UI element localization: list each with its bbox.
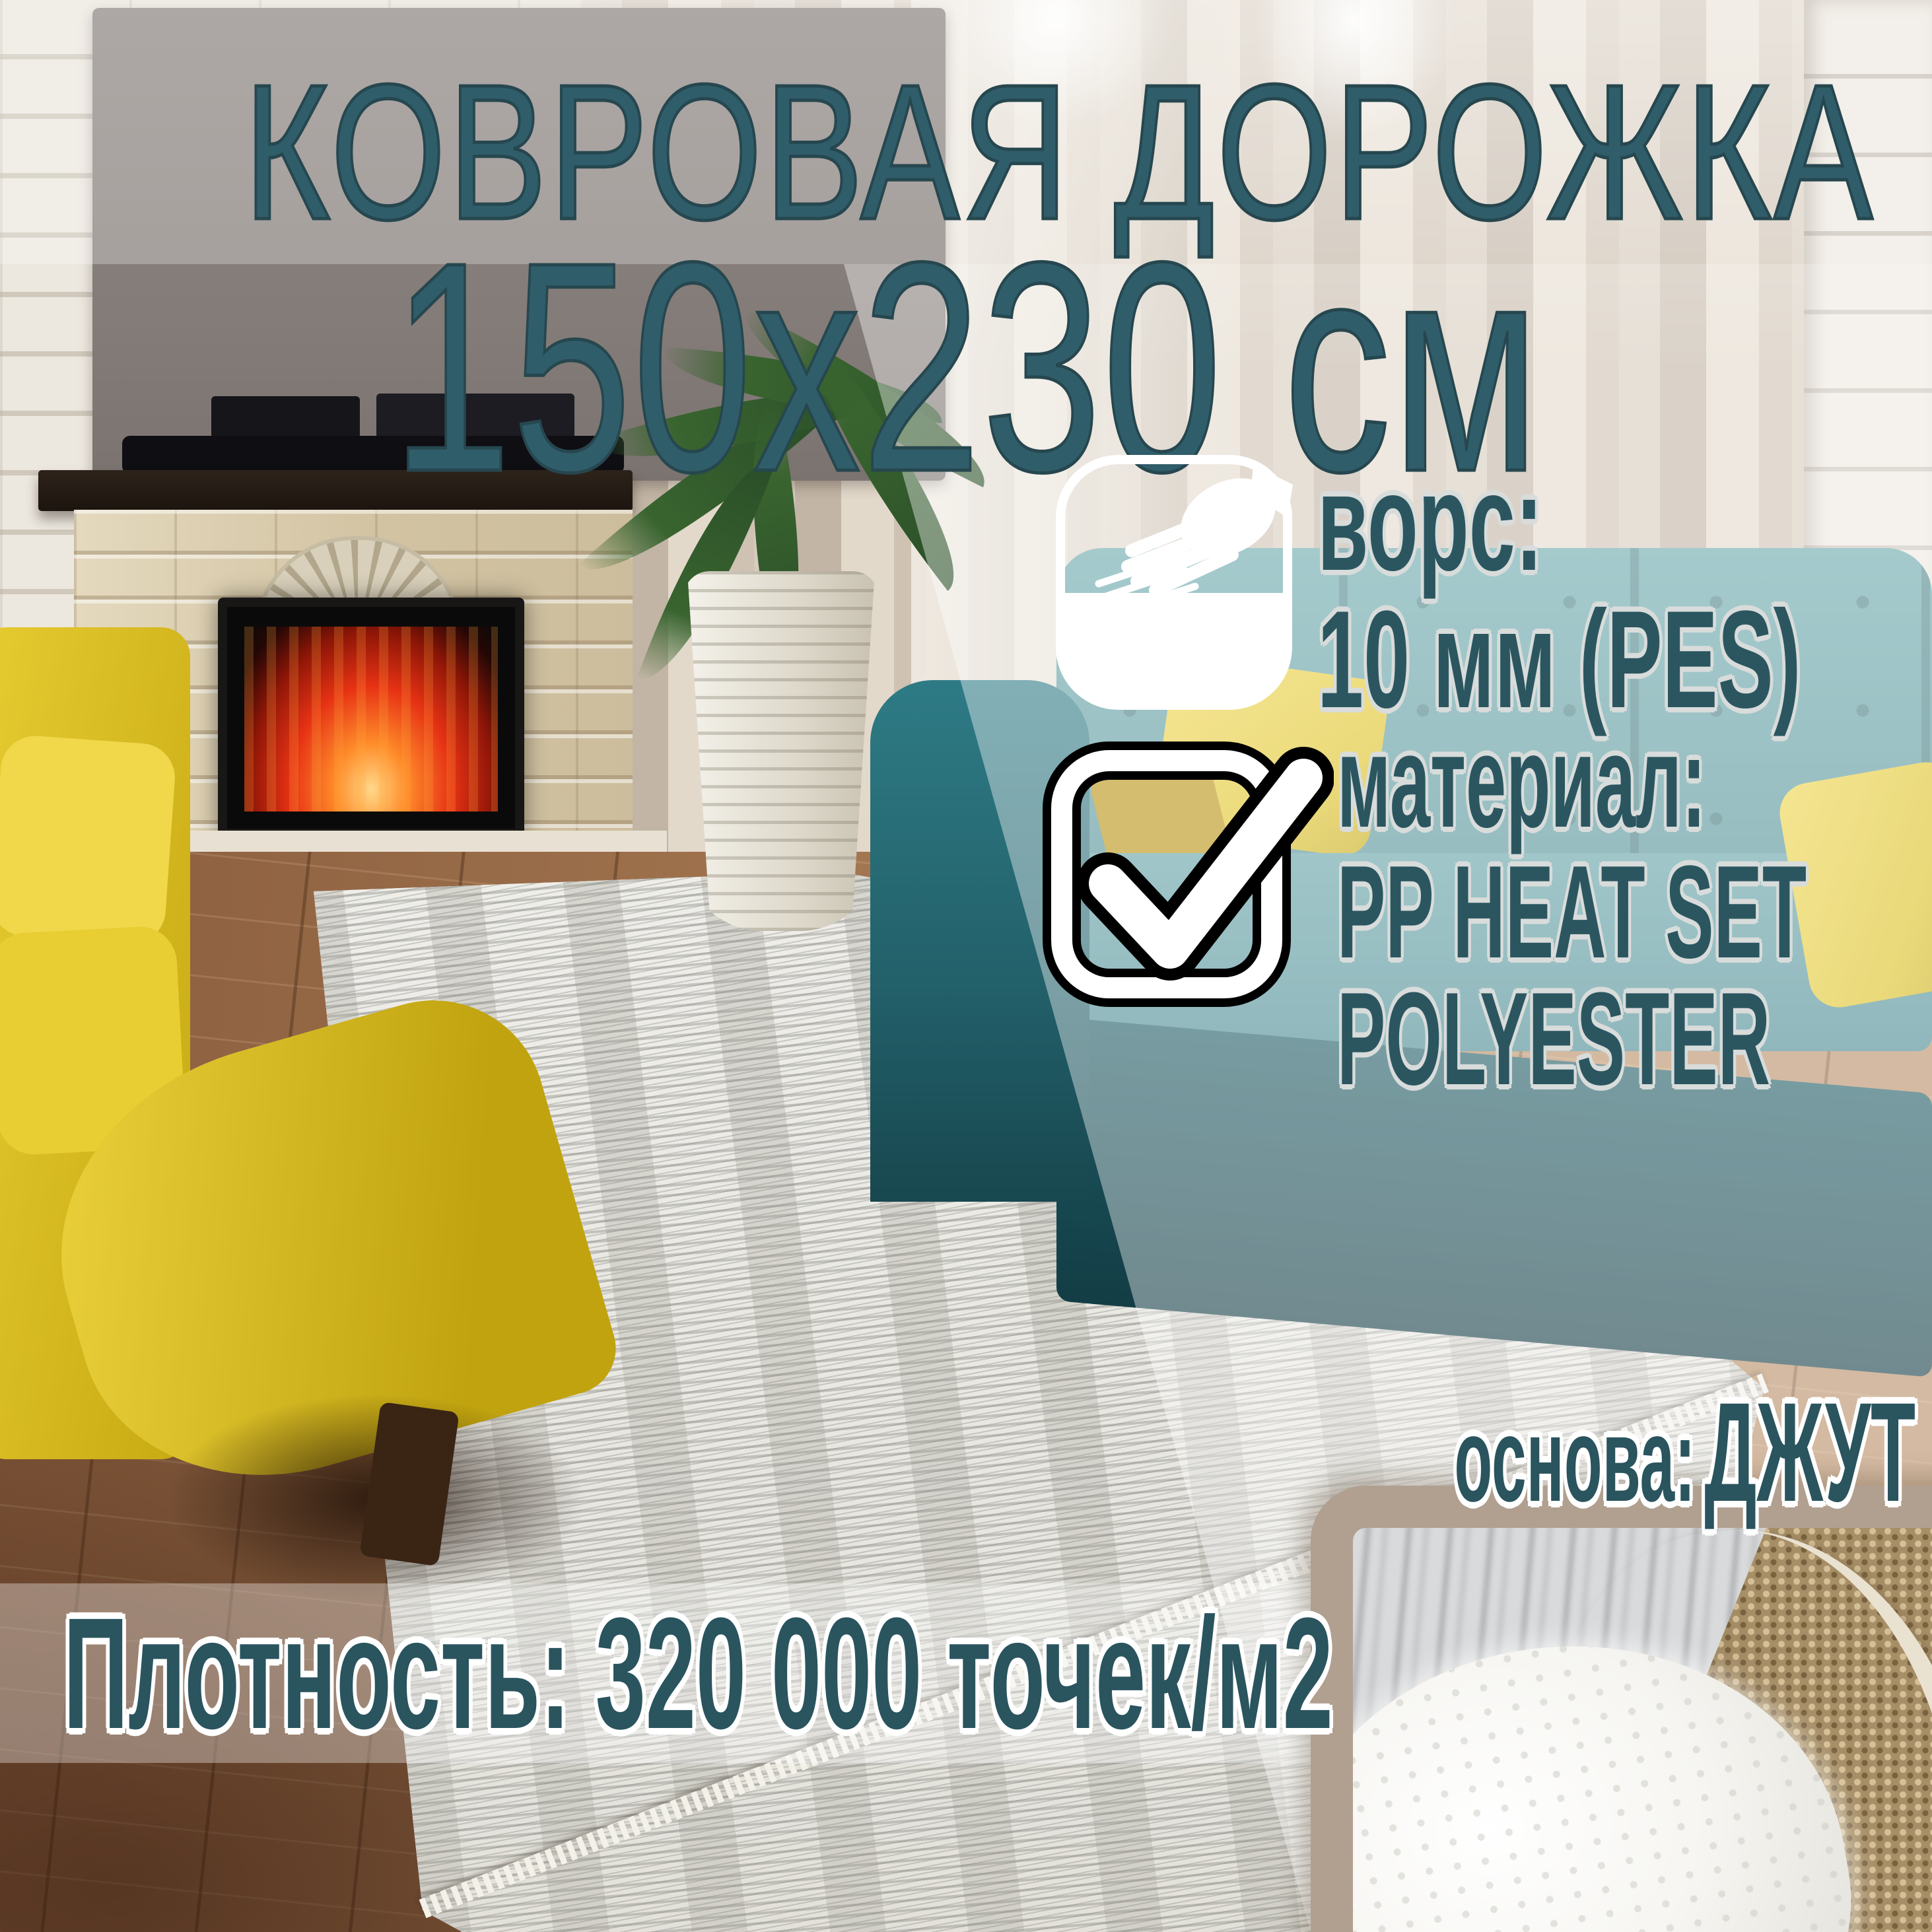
material-value-line2: POLYESTER [1337, 976, 1932, 1103]
product-card: КОВРОВАЯ ДОРОЖКА 150х230 см ворс: [0, 0, 1932, 1932]
material-label: материал: [1337, 718, 1932, 845]
density-line: Плотность: 320 000 точек/м2 [63, 1598, 1932, 1748]
backing-label: основа: [1454, 1392, 1695, 1527]
checkbox-check-icon [1030, 717, 1334, 1021]
density-value: 320 000 точек/м2 [596, 1585, 1333, 1762]
armchair-cushion [0, 734, 177, 946]
pile-label: ворс: [1317, 456, 1694, 589]
backing-line: основа:ДЖУТ [1241, 1385, 1932, 1519]
material-value-line1: PP HEAT SET [1337, 849, 1932, 976]
floor-vase [683, 571, 879, 931]
fireplace-firebox [218, 598, 524, 838]
pile-value: 10 мм (PES) [1317, 593, 1932, 726]
hand-touching-pile-icon [1055, 454, 1293, 710]
fire-flames [244, 627, 498, 811]
density-label: Плотность: [63, 1585, 570, 1762]
backing-value: ДЖУТ [1704, 1373, 1915, 1531]
